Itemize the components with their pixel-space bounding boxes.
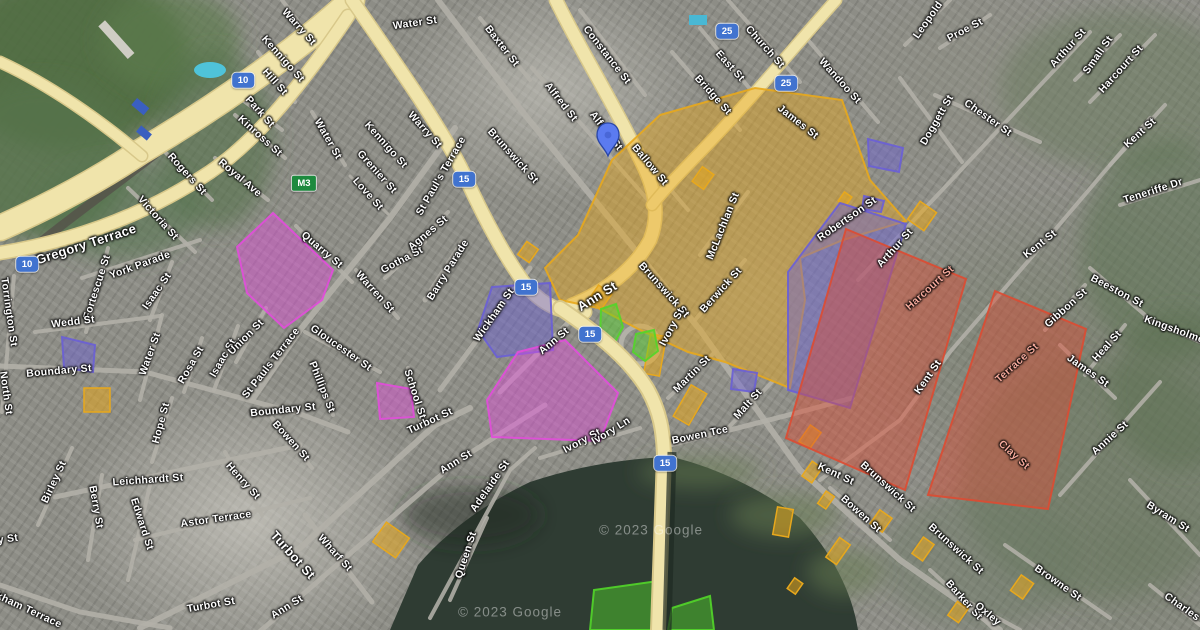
zone-purple-small[interactable] <box>868 139 903 172</box>
route-shield-10: 10 <box>16 257 38 272</box>
route-shield-15: 15 <box>515 280 537 295</box>
zone-purple-small[interactable] <box>62 337 95 372</box>
zone-magenta-small[interactable] <box>377 383 414 419</box>
map-pin-marker[interactable] <box>595 122 621 158</box>
satellite-map-canvas[interactable]: Warry StKennigo StHill StPark StKinross … <box>0 0 1200 630</box>
zone-purple-small[interactable] <box>731 369 757 392</box>
zone-orange-small[interactable] <box>907 201 936 230</box>
zone-orange-small[interactable] <box>518 241 539 262</box>
zone-orange-small[interactable] <box>870 510 892 533</box>
map-overlay-svg <box>0 0 1200 630</box>
route-shield-15: 15 <box>654 456 676 471</box>
route-shield-25: 25 <box>775 76 797 91</box>
zone-orange-small[interactable] <box>84 388 110 412</box>
route-shield-15: 15 <box>453 172 475 187</box>
zone-orange-small[interactable] <box>673 385 707 425</box>
route-shield-25: 25 <box>716 24 738 39</box>
route-shield-10: 10 <box>232 73 254 88</box>
route-shield-15: 15 <box>579 327 601 342</box>
route-shield-m3: M3 <box>292 176 316 191</box>
